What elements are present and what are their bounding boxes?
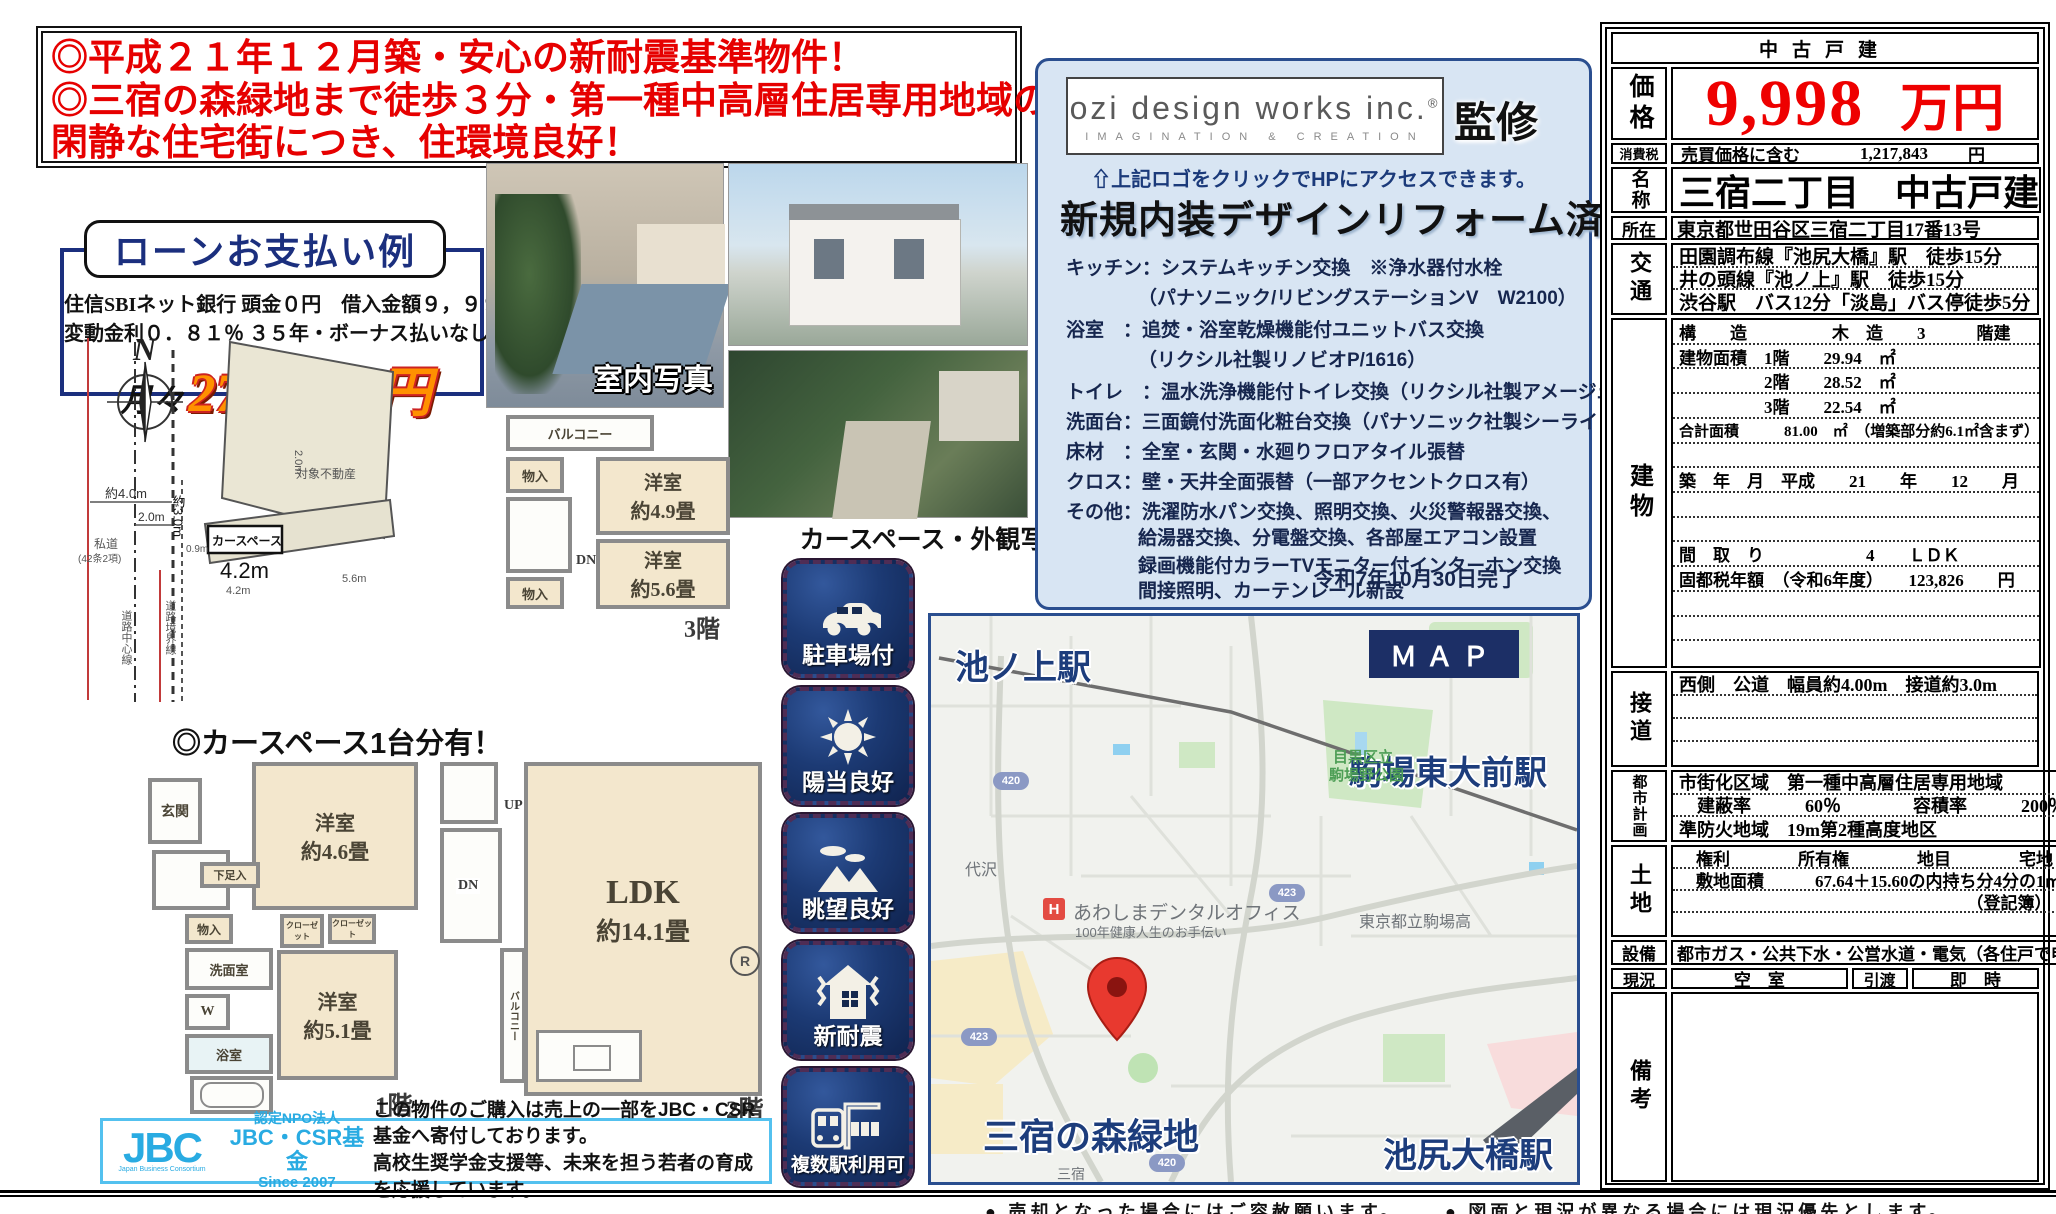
map-park2-line2: 駒場野公園 — [1329, 764, 1404, 785]
property-address: 東京都世田谷区三宿二丁目17番13号 — [1677, 215, 2037, 242]
map-station-ikejiri: 池尻大橋駅 — [1383, 1128, 1553, 1177]
road-line — [1673, 742, 2037, 765]
headline-line3: 閑静な住宅街につき、住環境良好！ — [51, 122, 1007, 165]
floor-plan-1f: 玄関 UP 下足入 洋室 約4.6畳 物入 洗面室 W 浴室 クローゼット クロ… — [140, 758, 425, 1116]
train-icon — [807, 1096, 889, 1152]
address-label: 所在 — [1611, 216, 1667, 240]
footer-note2: ● 図面と現況が異なる場合には現況優先とします。 — [1445, 1202, 1951, 1214]
map-green-area: 三宿の森緑地 — [983, 1108, 1199, 1160]
headline-line2: ◎三宿の森緑地まで徒歩３分・第一種中高層住居専用地域の — [51, 80, 1007, 123]
fp3-room1: 洋室 約4.9畳 — [596, 457, 730, 535]
ozi-logo-box[interactable]: ozi design works inc.® IMAGINATION & CRE… — [1066, 77, 1444, 155]
sofa-decor — [637, 224, 725, 284]
headline-box: ◎平成２１年１２月築・安心の新耐震基準物件！ ◎三宿の森緑地まで徒歩３分・第一種… — [36, 26, 1022, 168]
reform-title: 新規内装デザインリフォーム済 — [1060, 189, 1605, 244]
fp1-room2-name: 洋室 — [318, 986, 358, 1015]
fp2-dn-label: DN — [456, 878, 480, 894]
reform-item: キッチン：システムキッチン交換 ※浄水器付水栓 — [1066, 253, 1586, 280]
badge-earthquake: 新耐震 — [783, 941, 913, 1059]
ozi-logo-text: ozi design works inc. — [1070, 90, 1428, 126]
interior-photo-label: 室内写真 — [593, 355, 713, 399]
remarks-box — [1671, 992, 2039, 1182]
window-decor — [894, 239, 924, 279]
headline-line1: ◎平成２１年１２月築・安心の新耐震基準物件！ — [51, 37, 1007, 80]
carspace-note: ◎カースペース1台分有！ — [172, 720, 502, 762]
jbc-line1: この物件のご購入は売上の一部をJBC・CSR基金へ寄付しております。 — [373, 1098, 769, 1151]
site-dim-42b: 4.2m — [226, 585, 250, 597]
building-row: 3階 22.54 ㎡ — [1673, 394, 2039, 419]
fp3-floor-label: 3階 — [684, 609, 720, 644]
jbc-npo: 認定NPO法人 — [221, 1111, 373, 1126]
remarks-label: 備考 — [1611, 992, 1667, 1182]
building-row — [1673, 592, 2039, 617]
fp1-bathtub — [190, 1076, 273, 1114]
sun-icon — [818, 707, 878, 767]
tax-label: 消費税 — [1611, 143, 1667, 164]
building-row: 固都税年額 （令和6年度） 123,826 円 — [1673, 567, 2039, 592]
area-map: 池ノ上駅 駒場東大前駅 三宿の森緑地 池尻大橋駅 駒場 目黒区立 駒場野公園 H… — [928, 613, 1580, 1185]
price-value: 9,998 — [1706, 66, 1865, 142]
fp2-balcony: バルコニー — [500, 948, 526, 1083]
fp2-ldk-name: LDK — [606, 874, 680, 912]
badge-view-label: 眺望良好 — [802, 898, 894, 921]
reform-item: 給湯器交換、分電盤交換、各部屋エアコン設置 — [1138, 523, 1658, 550]
fp1-room2-size: 約5.1畳 — [303, 1015, 371, 1045]
equipment-value: 都市ガス・公共下水・公営水道・電気（各住戸で申込） — [1677, 940, 2056, 965]
map-poi-sub: 100年健康人生のお手伝い — [1075, 922, 1227, 941]
fp3-room2-name: 洋室 — [644, 546, 682, 573]
reform-item: トイレ ：温水洗浄機能付トイレ交換（リクシル社製アメージュZ+WS） — [1066, 377, 1586, 404]
road-label: 接道 — [1611, 671, 1667, 767]
bottom-divider — [0, 1190, 2056, 1197]
car-icon — [815, 596, 881, 640]
badge-stations: 複数駅利用可 — [783, 1068, 913, 1186]
building-row — [1673, 641, 2039, 666]
reform-item: 洗面台：三面鏡付洗面化粧台交換（パナソニック社製シーラインW７５０） — [1066, 407, 1586, 434]
fp3-dn-label: DN — [576, 553, 596, 569]
access-label: 交通 — [1611, 243, 1667, 315]
hospital-icon: H — [1043, 898, 1065, 920]
building-label: 建物 — [1611, 318, 1667, 668]
exterior-photo-entrance — [728, 350, 1028, 518]
building-row: 建物面積 1階 29.94 ㎡ — [1673, 345, 2039, 370]
interior-photo: 室内写真 — [486, 163, 724, 408]
registered-mark: ® — [1428, 95, 1441, 110]
road-line — [1673, 696, 2037, 719]
site-private-road2: (42条2項) — [78, 552, 121, 565]
fp2-kitchen — [536, 1030, 642, 1082]
route-badge-420b: 420 — [1149, 1154, 1185, 1172]
land-line: （登記簿） — [1673, 891, 2056, 913]
tax-text: 売買価格に含む — [1681, 141, 1800, 166]
map-button[interactable]: ＭＡＰ — [1369, 630, 1519, 678]
route-badge-423: 423 — [1269, 884, 1305, 902]
reform-item: その他：洗濯防水パン交換、照明交換、火災警報器交換、 — [1066, 497, 1586, 524]
building-row: 合計面積 81.00 ㎡ （増築部分約6.1㎡含まず） — [1673, 419, 2039, 444]
jbc-fund: JBC・CSR基金 — [221, 1126, 373, 1174]
badge-parking-label: 駐車場付 — [802, 644, 894, 667]
site-plan: カースペース 4.2m 対象不動産 約4.0m 2.0m 約3.0m 0.9m … — [60, 330, 395, 705]
site-dim-30: 約3.0m — [171, 495, 186, 537]
reform-item: （パナソニック/リビングステーションV W2100） — [1138, 283, 1658, 310]
handover-label: 引渡 — [1852, 968, 1908, 989]
city-plan-line: 市街化区域 第一種中高層住居専用地域 — [1673, 772, 2056, 795]
building-row: 2階 28.52 ㎡ — [1673, 369, 2039, 394]
route-badge-420: 420 — [993, 772, 1029, 790]
city-plan-line: 準防火地域 19m第2種高度地区 — [1673, 817, 2056, 840]
building-row: 間 取 り 4 ＬＤＫ — [1673, 542, 2039, 567]
fp2-toilet — [440, 762, 498, 824]
badge-stations-label: 複数駅利用可 — [791, 1156, 905, 1175]
access-line: 渋谷駅 バス12分「淡島」バス停徒歩5分 — [1673, 290, 2037, 313]
city-plan-label: 都市計画 — [1611, 770, 1667, 842]
site-dim-20b: 2.0m — [292, 450, 304, 474]
site-parcel-label: 対象不動産 — [296, 466, 356, 481]
footer-note1: ● 売却となった場合にはご容赦願います。 — [985, 1202, 1402, 1214]
exterior-photo-house — [728, 163, 1028, 346]
fp3-room2-size: 約5.6畳 — [631, 573, 696, 602]
reform-item: 床材 ：全室・玄関・水廻りフロアタイル張替 — [1066, 437, 1586, 464]
map-school-label: 東京都立駒場高 — [1359, 908, 1471, 932]
handover-value: 即 時 — [1912, 968, 2039, 989]
supervisor-box: ozi design works inc.® IMAGINATION & CRE… — [1035, 58, 1592, 610]
road-line — [1673, 719, 2037, 742]
fp1-wash: 洗面室 — [185, 948, 273, 990]
sink-icon — [573, 1045, 611, 1071]
roof-decor — [789, 204, 959, 220]
land-line: 敷地面積 67.64＋15.60の内持ち分4分の1㎡ — [1673, 869, 2056, 891]
land-line — [1673, 913, 2056, 935]
access-line: 井の頭線『池ノ上』駅 徒歩15分 — [1673, 268, 2037, 291]
fp1-room1-size: 約4.6畳 — [301, 836, 369, 866]
floor-plan-2f: UP DN LDK 約14.1畳 バルコニー R 2階 — [432, 758, 772, 1116]
tax-unit: 円 — [1968, 141, 1985, 166]
name-label: 名称 — [1611, 167, 1667, 213]
jbc-logo-sub: Japan Business Consortium — [103, 1166, 221, 1173]
fp1-entrance: 玄関 — [148, 778, 202, 844]
fp2-ldk-size: 約14.1畳 — [596, 912, 690, 948]
site-dim-42: 4.2m — [220, 558, 269, 583]
price-label: 価格 — [1611, 67, 1667, 140]
fp3-balcony: バルコニー — [506, 415, 654, 451]
exterior-photo-label: カースペース・外観写真 — [795, 520, 1075, 556]
property-type-header: 中古戸建 — [1611, 32, 2039, 64]
logo-click-note: ⇧上記ロゴをクリックでHPにアクセスできます。 — [1038, 163, 1589, 192]
equipment-label: 設備 — [1611, 940, 1667, 965]
site-private-road: 私道 — [94, 537, 118, 551]
fp1-room1-name: 洋室 — [315, 807, 355, 836]
footer-notes: ● 売却となった場合にはご容赦願います。 ● 図面と現況が異なる場合には現況優先… — [985, 1198, 2050, 1214]
status-value: 空 室 — [1671, 968, 1848, 989]
road-line: 西側 公道 幅員約4.00m 接道約3.0m — [1673, 673, 2037, 696]
reform-item: クロス：壁・天井全面張替（一部アクセントクロス有） — [1066, 467, 1586, 494]
map-area-daizawa: 代沢 — [965, 856, 997, 880]
access-line: 田園調布線『池尻大橋』駅 徒歩15分 — [1673, 245, 2037, 268]
fp3-room1-size: 約4.9畳 — [631, 495, 696, 524]
flyer-canvas: ◎平成２１年１２月築・安心の新耐震基準物件！ ◎三宿の森緑地まで徒歩３分・第一種… — [0, 0, 2056, 1214]
building-row: 築 年 月 平成 21 年 12 月 — [1673, 468, 2039, 493]
site-dim-20: 2.0m — [138, 510, 165, 524]
site-road-center: 道路中心線 — [120, 609, 133, 665]
fp3-room1-name: 洋室 — [644, 468, 682, 495]
route-badge-423b: 423 — [961, 1028, 997, 1046]
badge-earthquake-label: 新耐震 — [814, 1025, 883, 1048]
supervision-label: 監修 — [1454, 89, 1538, 150]
window-decor — [814, 239, 844, 279]
fp1-bath: 浴室 — [185, 1034, 273, 1074]
wall-decor — [939, 371, 1019, 441]
badge-view: 眺望良好 — [783, 814, 913, 932]
site-road-edge: 道路境界線 — [164, 599, 177, 655]
price-unit: 万円 — [1900, 66, 2004, 141]
fp2-refrigerator: R — [730, 946, 760, 976]
fp3-room2: 洋室 約5.6畳 — [596, 539, 730, 609]
map-poi-name: あわしまデンタルオフィス — [1073, 898, 1301, 925]
floor-plan-3f: バルコニー 物入 DN 物入 洋室 約4.9畳 洋室 約5.6畳 3階 — [498, 415, 730, 629]
property-name: 三宿二丁目 中古戸建 — [1679, 164, 2039, 216]
site-dim-40: 約4.0m — [105, 486, 147, 501]
mountain-icon — [815, 842, 881, 894]
map-station-ikenoue: 池ノ上駅 — [955, 640, 1091, 689]
badge-parking: 駐車場付 — [783, 560, 913, 678]
site-dim-09: 0.9m — [186, 544, 208, 555]
land-line: 権利 所有権 地目 宅地 — [1673, 847, 2056, 869]
building-row: 構 造 木 造 3 階建 — [1673, 320, 2039, 345]
fp1-closet3: クローゼット — [328, 914, 376, 944]
loan-line1: 住信SBIネット銀行 頭金０円 借入金額９，９９８万円 — [64, 288, 488, 317]
fp3-closet1: 物入 — [506, 457, 564, 493]
building-row — [1673, 444, 2039, 469]
fp3-stairs — [506, 497, 572, 573]
building-row — [1673, 493, 2039, 518]
city-plan-line: 建蔽率 60％ 容積率 200％ — [1673, 795, 2056, 818]
reform-item: （リクシル社製リノビオP/1616） — [1138, 345, 1658, 372]
jbc-box: JBC Japan Business Consortium 認定NPO法人 JB… — [100, 1118, 772, 1184]
quake-house-icon — [811, 963, 885, 1021]
tax-value: 1,217,843 — [1860, 144, 1928, 164]
badge-sunny: 陽当良好 — [783, 687, 913, 805]
fp3-closet2: 物入 — [506, 577, 564, 609]
loan-title: ローンお支払い例 — [84, 220, 446, 278]
path-decor — [832, 421, 931, 519]
ozi-logo-tagline: IMAGINATION & CREATION — [1085, 131, 1424, 143]
fp1-closet2: クローゼット — [280, 914, 324, 948]
fp1-shoe: 下足入 — [200, 862, 260, 888]
badge-sunny-label: 陽当良好 — [802, 771, 894, 794]
reform-completion-date: 令和7年10月30日完了 — [1314, 563, 1519, 593]
reform-item: 浴室 ：追焚・浴室乾燥機能付ユニットバス交換 — [1066, 315, 1586, 342]
land-label: 土地 — [1611, 845, 1667, 937]
fp1-room2: 洋室 約5.1畳 — [277, 950, 398, 1080]
spec-panel: 中古戸建 価格 9,998 万円 消費税 売買価格に含む 1,217,843 円… — [1600, 22, 2050, 1190]
jbc-since: Since 2007 — [221, 1175, 373, 1192]
building-row — [1673, 617, 2039, 642]
jbc-logo: JBC — [103, 1129, 221, 1167]
fp2-up-label: UP — [504, 798, 523, 814]
fp1-room1: 洋室 約4.6畳 — [252, 762, 418, 910]
site-dim-56: 5.6m — [342, 573, 366, 585]
fp1-washer: W — [185, 994, 230, 1030]
bathtub-icon — [200, 1082, 264, 1108]
map-area-mishuku: 三宿 — [1057, 1164, 1085, 1184]
building-row — [1673, 518, 2039, 543]
site-carspace-label: カースペース — [212, 534, 282, 548]
status-label: 現況 — [1611, 968, 1667, 989]
fp1-closet: 物入 — [185, 914, 233, 944]
